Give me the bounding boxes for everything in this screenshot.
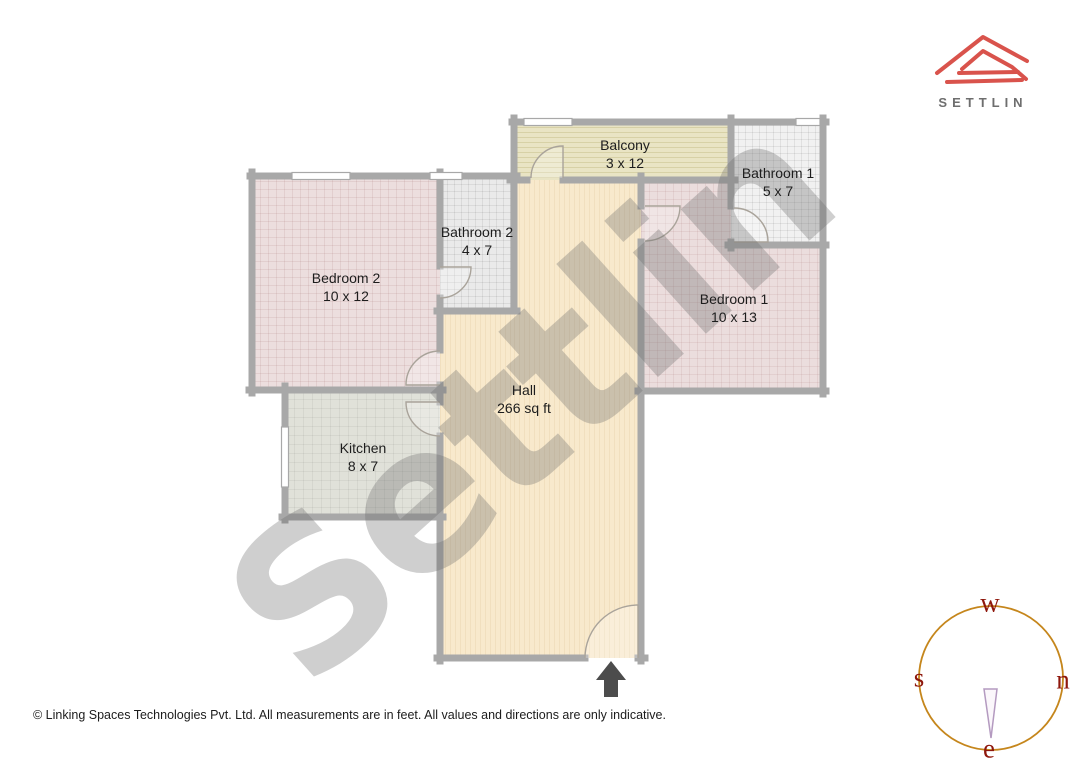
compass-east-label: e [983,734,995,764]
floorplan-page: SETTLIN [0,0,1080,764]
room-dims: 3 x 12 [600,154,650,172]
room-dims: 8 x 7 [340,457,387,475]
compass-north-label: n [1056,665,1070,696]
compass-needle-icon [984,689,997,738]
compass-south-label: s [914,663,925,694]
room-name: Kitchen [340,439,387,457]
window [524,119,572,126]
footer-copyright: © Linking Spaces Technologies Pvt. Ltd. … [33,708,666,722]
room-dims: 10 x 13 [700,308,768,326]
door-arc-kitchen [406,402,440,436]
room-label-balcony: Balcony 3 x 12 [600,136,650,172]
brand-name: SETTLIN [928,95,1038,110]
compass: w s n e [905,592,1080,764]
room-label-bathroom1: Bathroom 1 5 x 7 [742,164,814,200]
room-name: Bathroom 2 [441,223,513,241]
window [292,173,350,180]
door-arc-bathroom1 [734,208,768,242]
room-name: Bedroom 2 [312,269,380,287]
brand-house-icon [928,26,1038,86]
room-label-bedroom1: Bedroom 1 10 x 13 [700,290,768,326]
door-arc-entrance [585,605,638,658]
door-arc-bathroom2 [440,267,471,298]
room-label-kitchen: Kitchen 8 x 7 [340,439,387,475]
room-label-hall: Hall 266 sq ft [497,381,551,417]
window [796,119,820,126]
entrance-arrow-icon [596,661,626,697]
room-name: Hall [497,381,551,399]
room-dims: 5 x 7 [742,182,814,200]
brand-logo: SETTLIN [928,26,1038,110]
room-dims: 10 x 12 [312,287,380,305]
room-label-bedroom2: Bedroom 2 10 x 12 [312,269,380,305]
window [282,427,289,487]
room-dims: 266 sq ft [497,399,551,417]
door-arc-bedroom2 [406,351,440,385]
door-arc-balcony [531,146,563,178]
door-arc-bedroom1 [645,206,680,241]
compass-west-label: w [980,588,1000,619]
room-name: Balcony [600,136,650,154]
room-dims: 4 x 7 [441,241,513,259]
window [430,173,462,180]
room-label-bathroom2: Bathroom 2 4 x 7 [441,223,513,259]
room-name: Bathroom 1 [742,164,814,182]
room-name: Bedroom 1 [700,290,768,308]
